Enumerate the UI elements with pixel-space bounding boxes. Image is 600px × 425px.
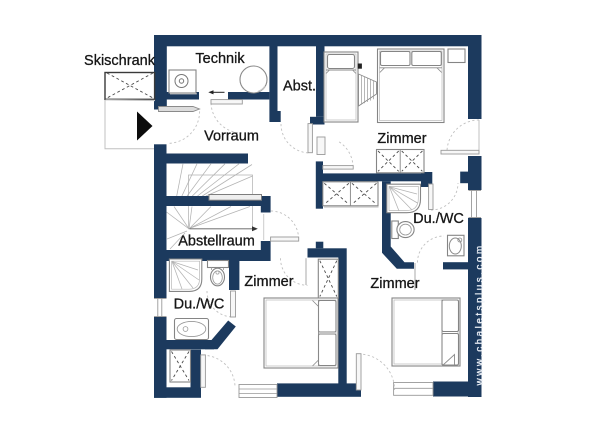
svg-text:Technik: Technik [195,51,245,67]
svg-text:Du./WC: Du./WC [413,211,464,227]
svg-text:Zimmer: Zimmer [244,274,293,290]
svg-text:Skischrank: Skischrank [84,53,156,69]
svg-text:Du./WC: Du./WC [174,297,225,313]
svg-text:www.chaletsplus.com: www.chaletsplus.com [475,243,486,386]
svg-text:Abstellraum: Abstellraum [178,234,255,250]
svg-text:Abst.: Abst. [283,79,316,95]
svg-text:Vorraum: Vorraum [204,129,259,145]
svg-text:Zimmer: Zimmer [370,276,419,292]
svg-text:Zimmer: Zimmer [377,131,426,147]
